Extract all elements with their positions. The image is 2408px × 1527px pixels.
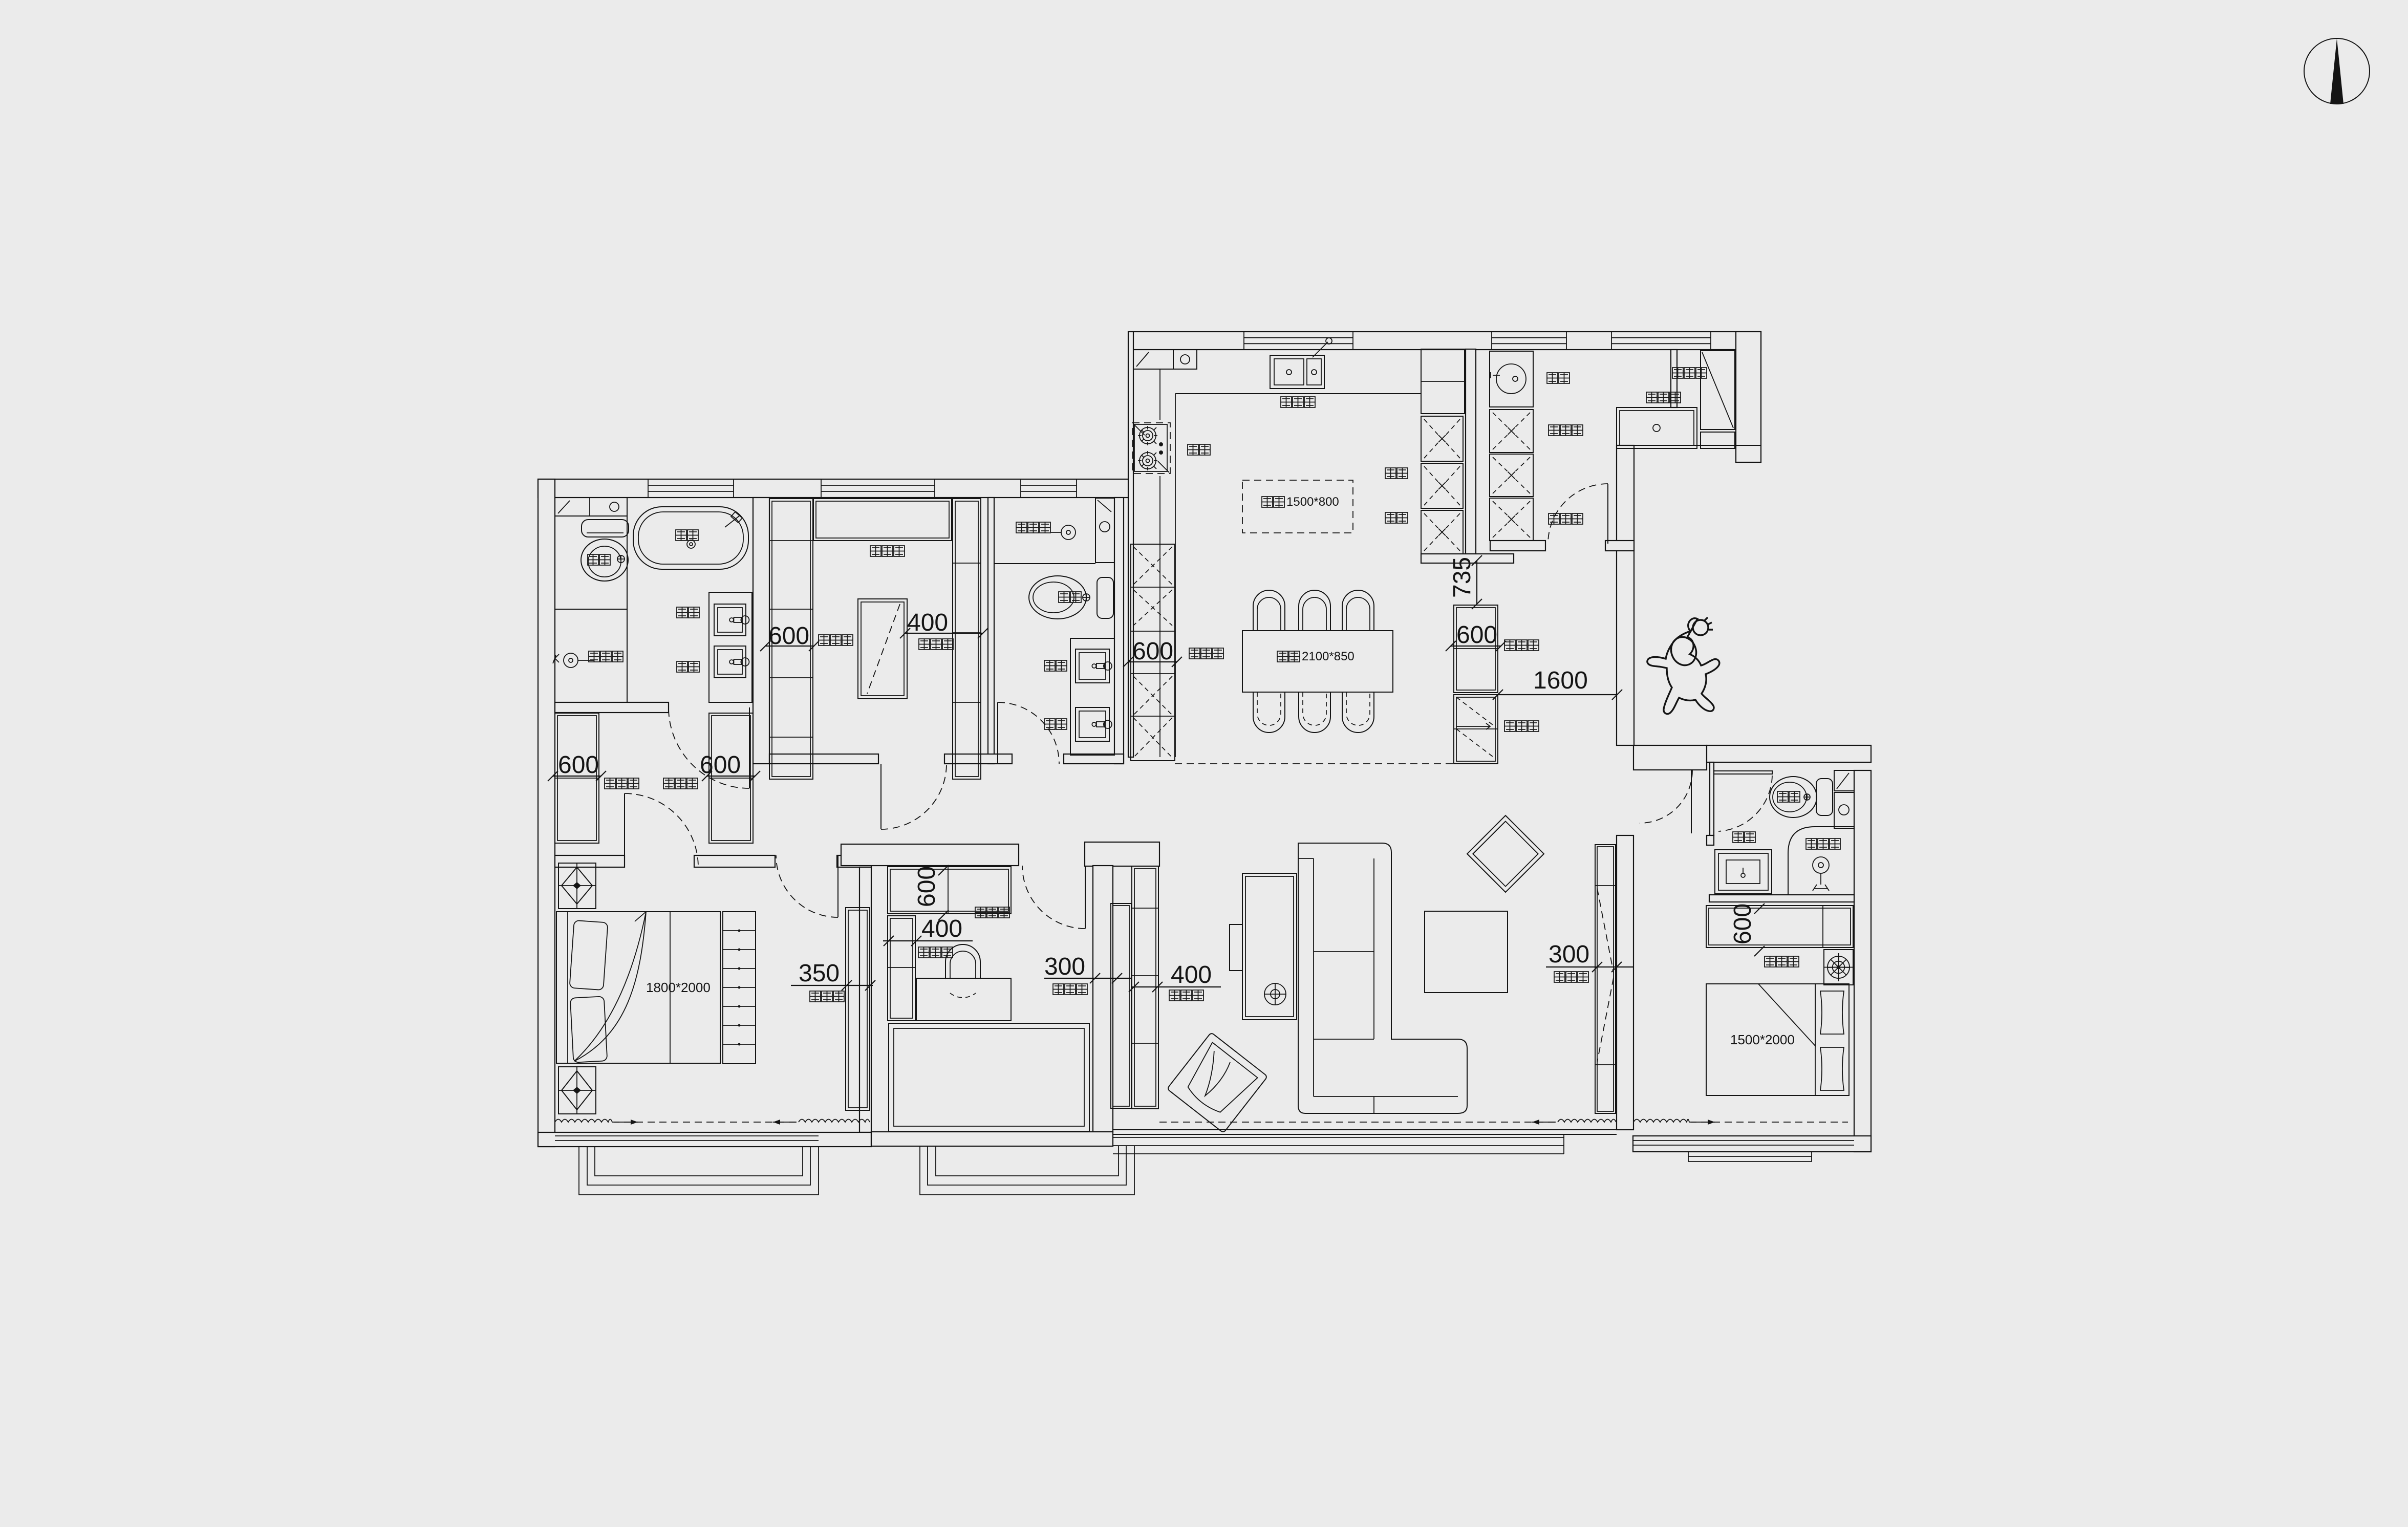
svg-text:2100*850: 2100*850	[1302, 650, 1354, 663]
svg-text:600: 600	[1729, 904, 1756, 944]
svg-text:350: 350	[799, 960, 840, 987]
svg-text:1600: 1600	[1533, 667, 1588, 694]
svg-text:600: 600	[700, 751, 741, 779]
svg-text:600: 600	[558, 751, 599, 779]
svg-text:400: 400	[921, 915, 962, 942]
svg-text:400: 400	[1171, 961, 1212, 988]
svg-text:600: 600	[913, 866, 940, 907]
svg-text:600: 600	[1456, 621, 1497, 649]
svg-text:1500*2000: 1500*2000	[1730, 1032, 1795, 1047]
svg-text:400: 400	[907, 609, 948, 636]
svg-text:300: 300	[1044, 953, 1085, 980]
svg-text:300: 300	[1549, 941, 1589, 968]
svg-text:735: 735	[1449, 557, 1476, 598]
svg-text:1500*800: 1500*800	[1286, 495, 1339, 509]
svg-text:600: 600	[1132, 638, 1173, 665]
svg-text:1800*2000: 1800*2000	[646, 980, 711, 995]
